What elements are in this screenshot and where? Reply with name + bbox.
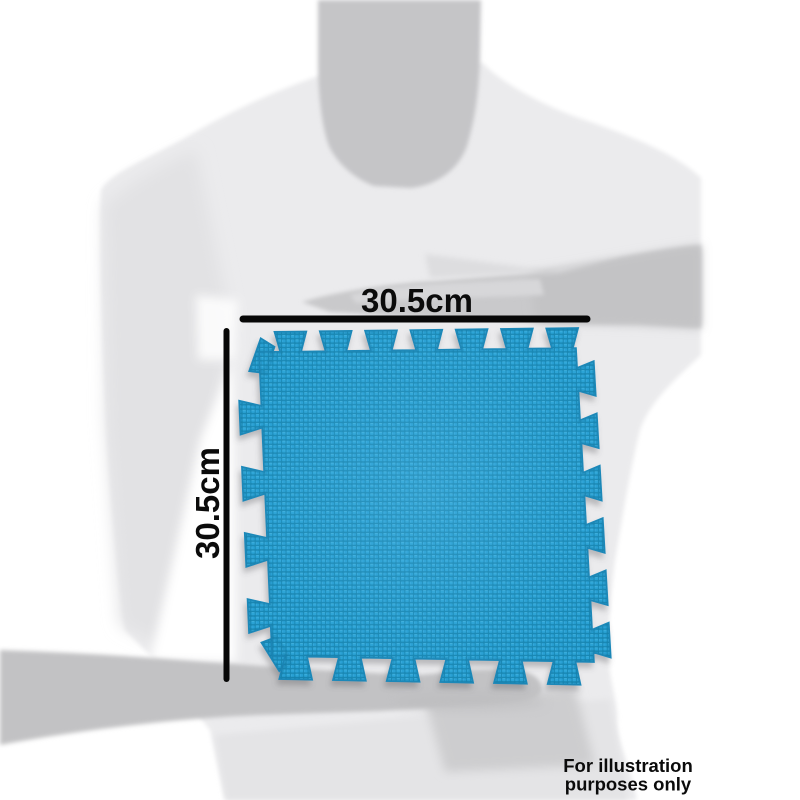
svg-text:30.5cm: 30.5cm <box>189 447 226 559</box>
svg-text:purposes only: purposes only <box>565 774 692 795</box>
svg-text:30.5cm: 30.5cm <box>361 282 473 319</box>
